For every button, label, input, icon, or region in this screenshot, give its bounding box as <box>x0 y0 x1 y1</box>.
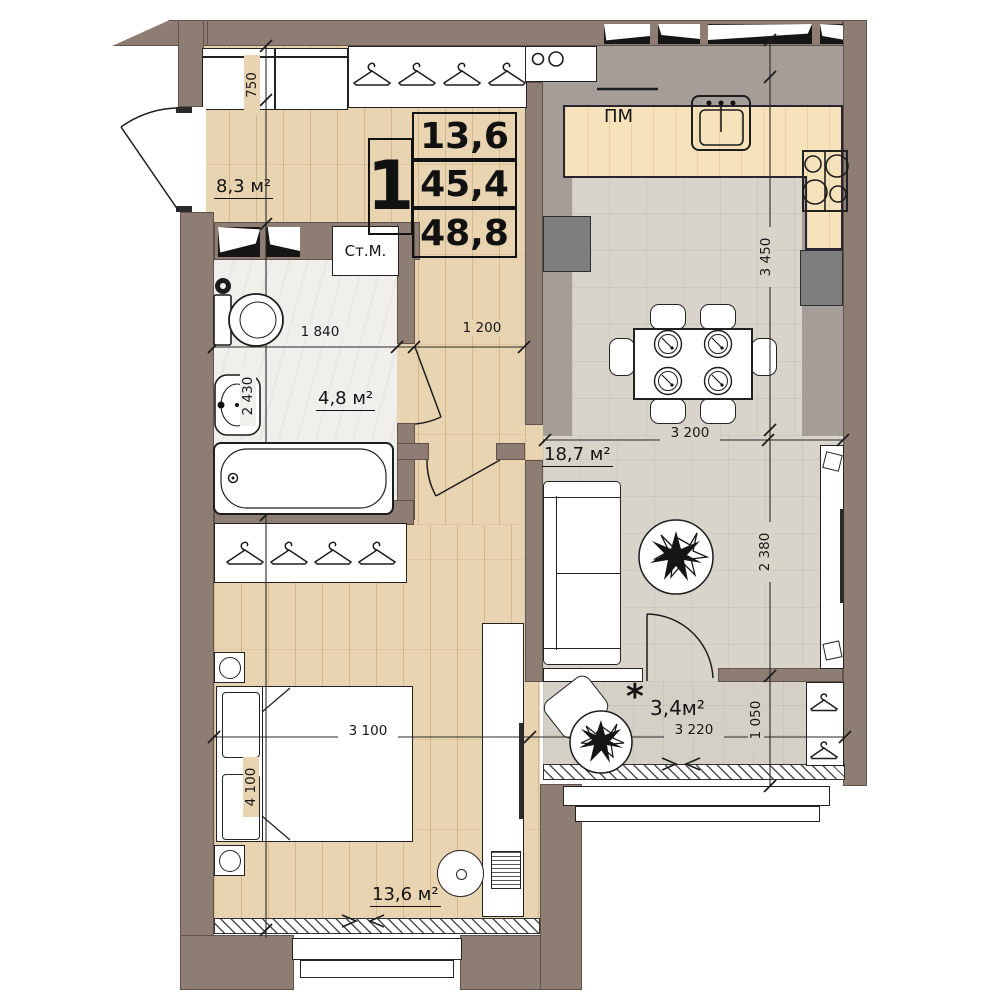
balcony-glazing-inner <box>575 806 820 822</box>
kitchen-cabinet-left <box>543 216 591 272</box>
nightstand-lamp <box>219 850 241 872</box>
stamp-total-area: 48,8 <box>420 213 509 254</box>
entrance-door-leaf <box>121 127 178 210</box>
dim-bedroom-height: 4 100 <box>243 757 259 817</box>
stamp-living-area-box: 13,6 <box>412 112 517 160</box>
kitchen-cabinet-right <box>800 250 843 306</box>
stamp-apartment-area-box: 45,4 <box>412 160 517 208</box>
bedroom-area-label: 13,6 м² <box>370 884 441 907</box>
bedroom-wardrobe <box>214 523 407 583</box>
dining-chair <box>650 398 686 424</box>
bedroom-window-inner <box>300 960 454 978</box>
dim-living-height: 2 380 <box>757 522 773 582</box>
wall-bottom-left <box>180 935 294 990</box>
balcony-sill <box>543 764 845 780</box>
wall-bedroom-door-left <box>397 443 429 460</box>
hall-area-label: 8,3 м² <box>214 176 273 199</box>
hall-console <box>525 46 597 82</box>
dishwasher-label: ПМ <box>604 106 633 127</box>
dining-chair <box>650 304 686 330</box>
window-glass <box>820 24 843 44</box>
tv-deco-bottom <box>822 640 842 660</box>
entrance-door-stub-top <box>176 107 192 113</box>
dim-living-width: 3 200 <box>660 425 720 441</box>
entrance-door-stub-bottom <box>176 206 192 212</box>
bed-blanket-line <box>262 687 263 841</box>
sofa-armrest-top <box>544 497 620 498</box>
bedroom-window-sill <box>214 918 540 934</box>
wall-bedroom-door-right <box>496 443 525 460</box>
washing-machine-label: Ст.М. <box>345 242 387 260</box>
balcony-closet <box>806 682 844 766</box>
nightstand <box>214 845 245 876</box>
desk-tv <box>519 723 523 819</box>
wall-left-main <box>180 212 214 940</box>
stamp-apartment-area: 45,4 <box>420 164 509 205</box>
hall-wardrobe-rail <box>348 46 527 108</box>
wall-hall-kitchen <box>525 82 543 425</box>
bedroom-desk <box>482 623 524 917</box>
stamp-rooms-count: 1 <box>367 147 414 226</box>
window-glass <box>604 24 650 44</box>
tv-screen <box>840 509 844 603</box>
tv-deco-top <box>822 451 843 472</box>
dim-corridor-width: 1 200 <box>452 320 512 336</box>
dim-bedroom-width: 3 100 <box>338 723 398 739</box>
kitchen-window-3 <box>708 24 812 44</box>
dining-table <box>633 328 753 400</box>
stamp-rooms-box: 1 <box>368 138 413 235</box>
balcony-area-marker: * <box>626 677 644 717</box>
entrance-opening <box>176 107 206 212</box>
dim-bathroom-height: 2 430 <box>240 366 256 426</box>
living-area-label: 18,7 м² <box>542 444 613 467</box>
wall-right <box>843 20 867 786</box>
balcony-area-label: 3,4м² <box>650 696 705 720</box>
wall-balcony-partition <box>718 668 843 682</box>
stamp-living-area: 13,6 <box>420 116 509 157</box>
tv-unit <box>820 445 844 669</box>
nightstand <box>214 652 245 683</box>
corridor-opening-floor <box>525 425 543 460</box>
vent-shaft-2 <box>266 227 300 257</box>
dim-bathroom-width: 1 840 <box>290 324 350 340</box>
dining-chair <box>700 398 736 424</box>
bedroom-rug <box>437 850 484 897</box>
hall-cabinet-edge <box>203 56 347 58</box>
hall-cabinet <box>202 48 348 110</box>
wall-bedroom-top <box>214 500 414 525</box>
window-glass <box>708 24 812 44</box>
dim-hall-cabinet: 750 <box>244 55 260 115</box>
floor-plan: Ст.М. 1 <box>0 0 1000 1000</box>
wall-left-entry <box>178 20 204 107</box>
dining-chair <box>700 304 736 330</box>
desk-books <box>491 851 521 889</box>
vent-glass <box>218 227 260 257</box>
bathroom-area-label: 4,8 м² <box>316 388 375 411</box>
rug-center <box>456 869 467 880</box>
nightstand-lamp <box>219 657 241 679</box>
dining-chair <box>751 338 777 376</box>
hall-cabinet-divider <box>274 49 276 109</box>
vent-shaft-1 <box>218 227 260 257</box>
entrance-door-arc <box>121 108 176 127</box>
sofa-cushion-line <box>556 573 620 574</box>
bed-pillow <box>222 692 260 758</box>
stamp-total-area-box: 48,8 <box>412 208 517 258</box>
dim-kitchen-height: 3 450 <box>758 227 774 287</box>
wall-corridor-living <box>525 460 543 682</box>
bedroom-window-outer <box>292 938 462 960</box>
stove <box>802 150 848 212</box>
window-glass <box>658 24 700 44</box>
dim-balcony-width: 3 220 <box>664 722 724 738</box>
vent-glass <box>266 227 300 257</box>
dim-balcony-depth: 1 050 <box>748 690 764 750</box>
balcony-glazing-outer <box>563 786 830 806</box>
kitchen-window-2 <box>658 24 700 44</box>
kitchen-window-1 <box>604 24 650 44</box>
kitchen-window-4 <box>820 24 843 44</box>
dining-chair <box>609 338 635 376</box>
sofa <box>543 481 621 665</box>
sofa-armrest-bottom <box>544 648 620 649</box>
